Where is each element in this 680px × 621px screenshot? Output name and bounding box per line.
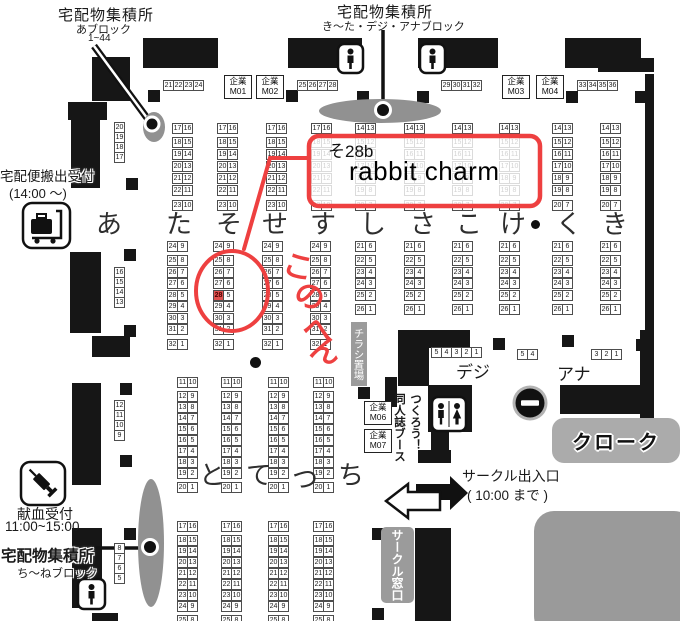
highlight-circle bbox=[196, 251, 268, 331]
leader-line bbox=[244, 158, 309, 249]
convention-hall-map: 1716181519142013211222112310171618151914… bbox=[0, 0, 680, 621]
annotation-circle-name: rabbit charm bbox=[349, 156, 500, 187]
red-annotations bbox=[0, 0, 680, 621]
